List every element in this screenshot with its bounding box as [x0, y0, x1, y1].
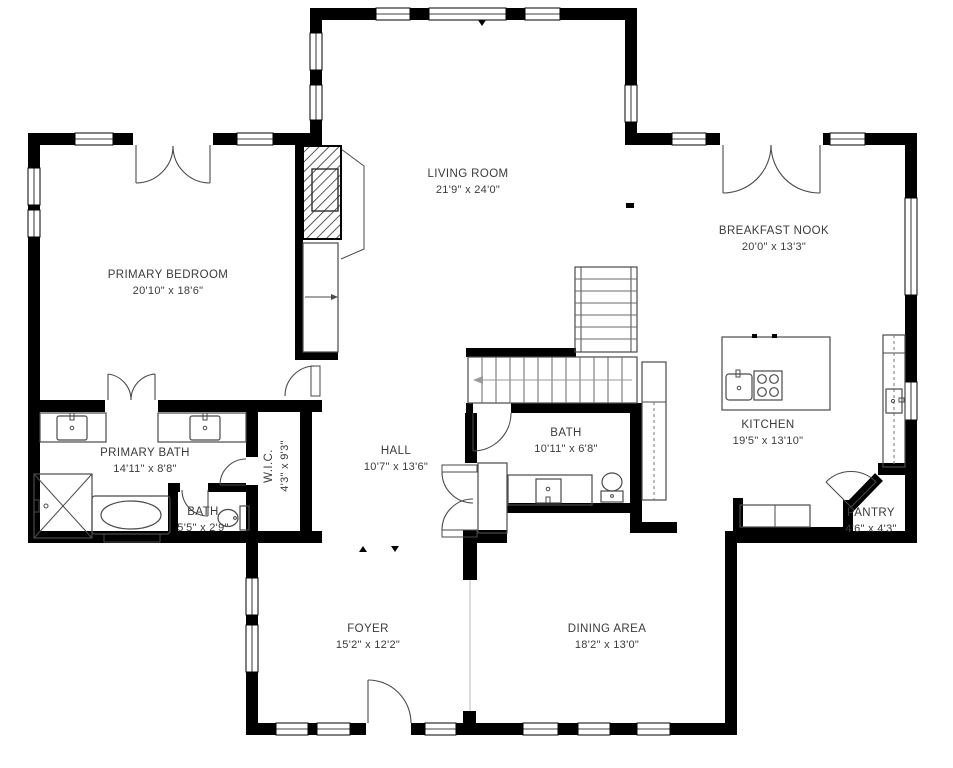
room-dims-dining-area: 18'2" x 13'0"	[575, 639, 639, 651]
window	[276, 723, 308, 735]
wall-segment	[246, 485, 258, 543]
wall-segment	[905, 133, 917, 543]
shower	[34, 474, 92, 538]
wall-segment	[246, 412, 258, 457]
vanity-counter	[158, 413, 246, 442]
window	[525, 8, 560, 20]
window	[905, 382, 917, 420]
wall-segment	[630, 403, 642, 533]
hall-bath-fixtures	[478, 463, 623, 533]
floor-plan-canvas: LIVING ROOM 21'9" x 24'0" BREAKFAST NOOK…	[0, 0, 953, 768]
window	[28, 210, 40, 237]
window	[246, 578, 258, 615]
room-label-wic: W.I.C.	[263, 449, 275, 483]
french-door-bedroom	[133, 133, 213, 183]
room-dims-living-room: 21'9" x 24'0"	[436, 184, 500, 196]
room-label-pantry: PANTRY	[847, 507, 895, 519]
window	[425, 723, 456, 735]
window	[523, 723, 558, 735]
room-label-primary-bedroom: PRIMARY BEDROOM	[108, 269, 229, 281]
window	[830, 133, 865, 145]
wall-segment	[477, 530, 507, 543]
room-label-primary-bath: PRIMARY BATH	[100, 447, 190, 459]
wall-segment	[625, 8, 637, 145]
wall-segment	[40, 400, 105, 412]
french-door-nook	[720, 133, 823, 193]
window	[317, 723, 350, 735]
front-door	[366, 680, 411, 735]
room-dims-pantry: 4'6" x 4'3"	[845, 523, 896, 535]
wic-door	[220, 457, 258, 485]
wall-segment	[847, 477, 879, 510]
room-label-living-room: LIVING ROOM	[427, 168, 508, 180]
vanity-counter	[40, 413, 106, 442]
room-dims-primary-bath: 14'11" x 8'8"	[113, 463, 176, 475]
hall-closet	[478, 463, 507, 533]
cooktop	[754, 371, 782, 400]
wall-segment	[878, 463, 905, 475]
wall-segment	[295, 352, 338, 360]
wall-segment	[463, 711, 476, 723]
kitchen-counter-bottom	[740, 505, 810, 527]
room-label-dining-area: DINING AREA	[568, 623, 647, 635]
wall-segment	[466, 403, 473, 413]
room-dims-wic: 4'3" x 9'3"	[279, 440, 291, 491]
window	[637, 723, 670, 735]
window	[246, 625, 258, 672]
room-label-small-bath: BATH	[187, 506, 218, 518]
windows	[28, 8, 917, 735]
wall-segment	[158, 400, 322, 412]
window	[28, 168, 40, 205]
wall-segment	[511, 403, 642, 413]
wall-segment	[466, 348, 576, 357]
island-sink	[726, 374, 752, 400]
french-door-primary-bath	[105, 374, 158, 412]
room-label-breakfast-nook: BREAKFAST NOOK	[719, 225, 829, 237]
room-dims-hall: 10'7" x 13'6"	[364, 461, 428, 473]
window	[75, 133, 113, 145]
toilet	[601, 473, 623, 502]
walls	[28, 8, 917, 735]
wall-segment	[630, 522, 677, 533]
room-label-bath: BATH	[550, 427, 581, 439]
room-dims-small-bath: 5'5" x 2'9"	[177, 522, 228, 534]
window	[625, 85, 637, 122]
window	[672, 133, 706, 145]
room-dims-foyer: 15'2" x 12'2"	[336, 639, 400, 651]
window	[578, 723, 610, 735]
fireplace-bay-outline	[341, 149, 364, 259]
room-label-hall: HALL	[381, 445, 412, 457]
room-label-foyer: FOYER	[347, 623, 389, 635]
window	[429, 8, 506, 20]
wall-segment	[465, 413, 477, 463]
wall-segment	[725, 543, 737, 735]
room-label-kitchen: KITCHEN	[741, 419, 794, 431]
wall-segment	[295, 145, 303, 360]
room-dims-primary-bedroom: 20'10" x 18'6"	[133, 285, 204, 297]
window	[310, 85, 322, 120]
window	[237, 133, 273, 145]
window	[310, 33, 322, 70]
staircase	[468, 267, 637, 403]
wall-segment	[310, 8, 322, 145]
bedroom-door	[285, 366, 320, 396]
room-dims-bath: 10'11" x 6'8"	[534, 443, 597, 455]
window	[905, 198, 917, 295]
doors	[105, 133, 876, 735]
kitchen-island	[722, 334, 830, 410]
kitchen-counter-left	[642, 362, 666, 500]
wall-segment	[733, 527, 848, 537]
bath-door	[473, 403, 511, 451]
kitchen-counter-right	[883, 335, 905, 467]
wall-segment	[300, 412, 312, 543]
room-dims-kitchen: 19'5" x 13'10"	[733, 435, 804, 447]
closet-doors	[442, 465, 477, 537]
floor-plan-svg: LIVING ROOM 21'9" x 24'0" BREAKFAST NOOK…	[0, 0, 953, 768]
window	[376, 8, 410, 20]
room-dims-breakfast-nook: 20'0" x 13'3"	[742, 241, 806, 253]
fireplace	[303, 146, 364, 352]
